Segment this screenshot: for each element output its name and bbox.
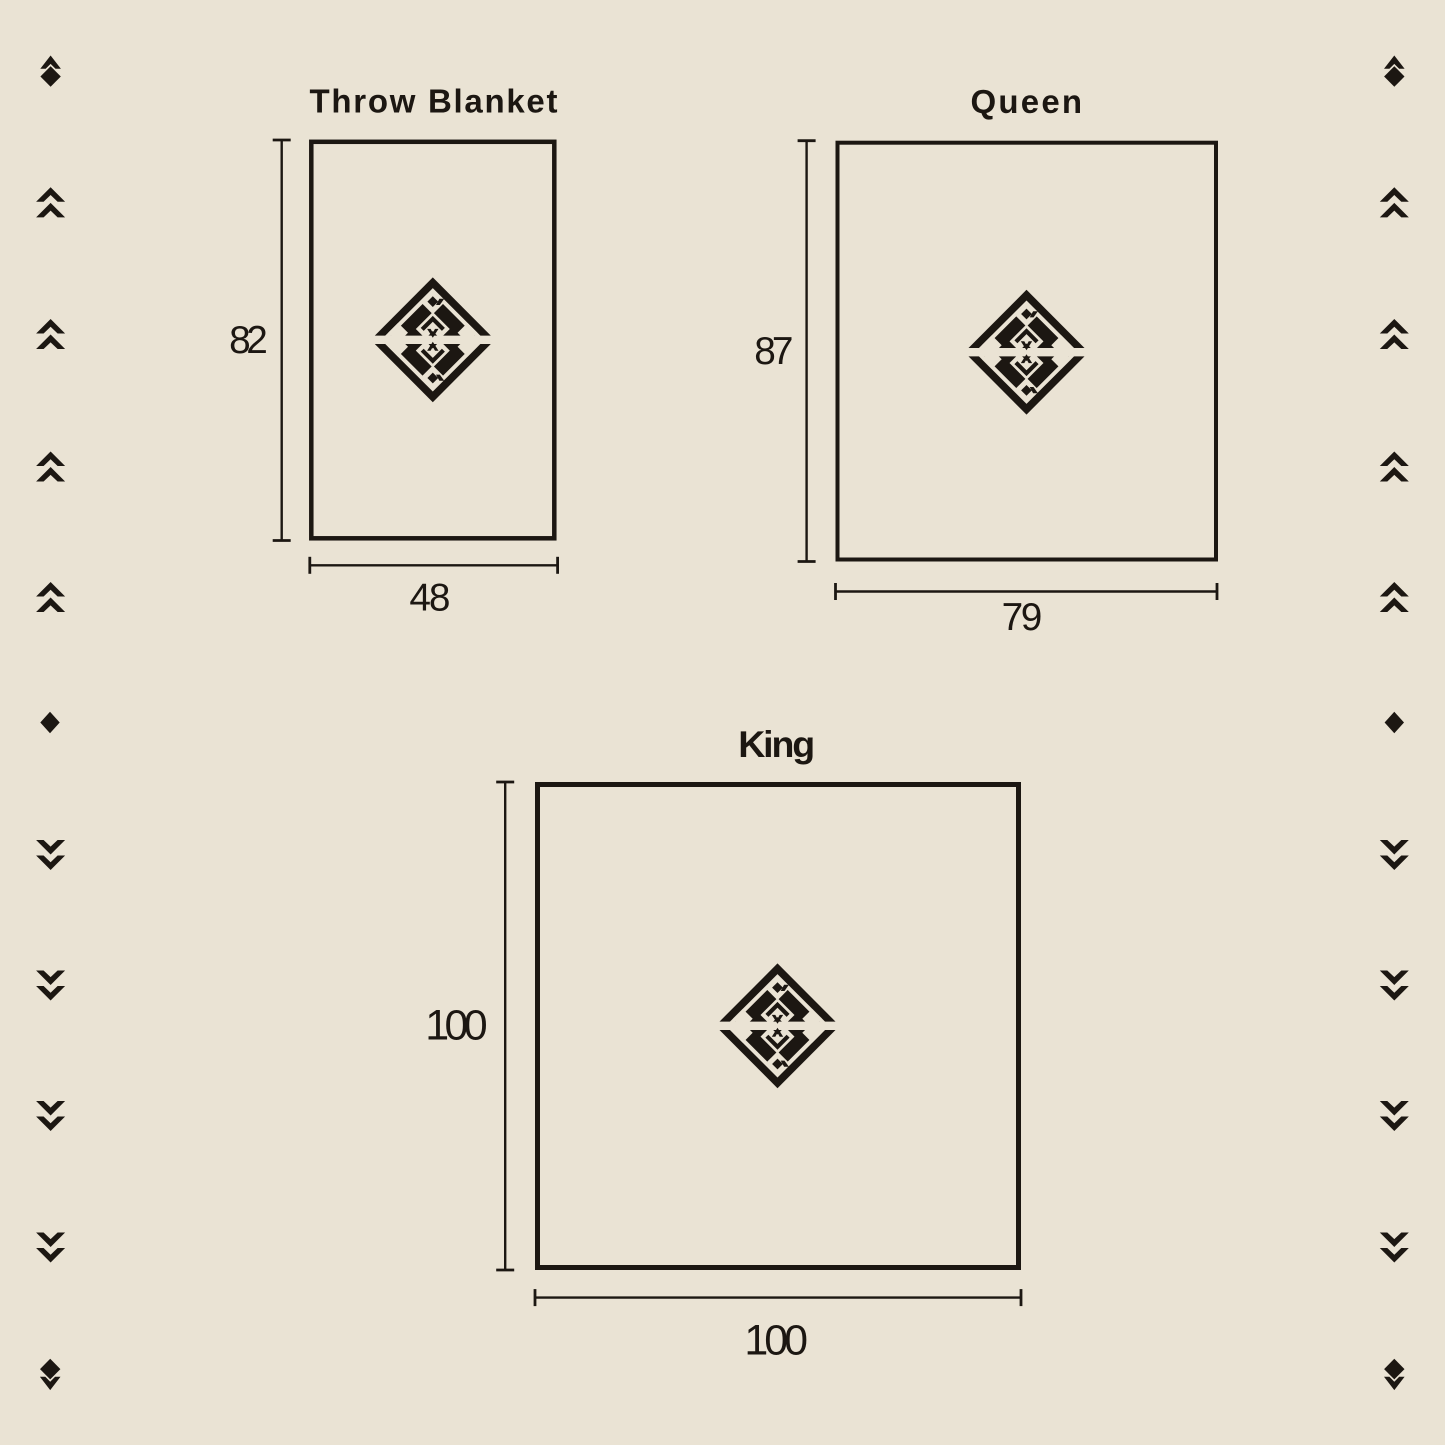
svg-text:100: 100 [744, 1317, 808, 1365]
svg-text:King: King [738, 723, 815, 765]
svg-text:87: 87 [754, 330, 793, 373]
svg-text:Queen: Queen [971, 83, 1083, 120]
svg-text:100: 100 [425, 1001, 488, 1049]
svg-text:Throw Blanket: Throw Blanket [310, 83, 558, 120]
svg-text:79: 79 [1002, 596, 1043, 639]
svg-text:82: 82 [229, 319, 268, 362]
svg-text:48: 48 [409, 577, 450, 620]
